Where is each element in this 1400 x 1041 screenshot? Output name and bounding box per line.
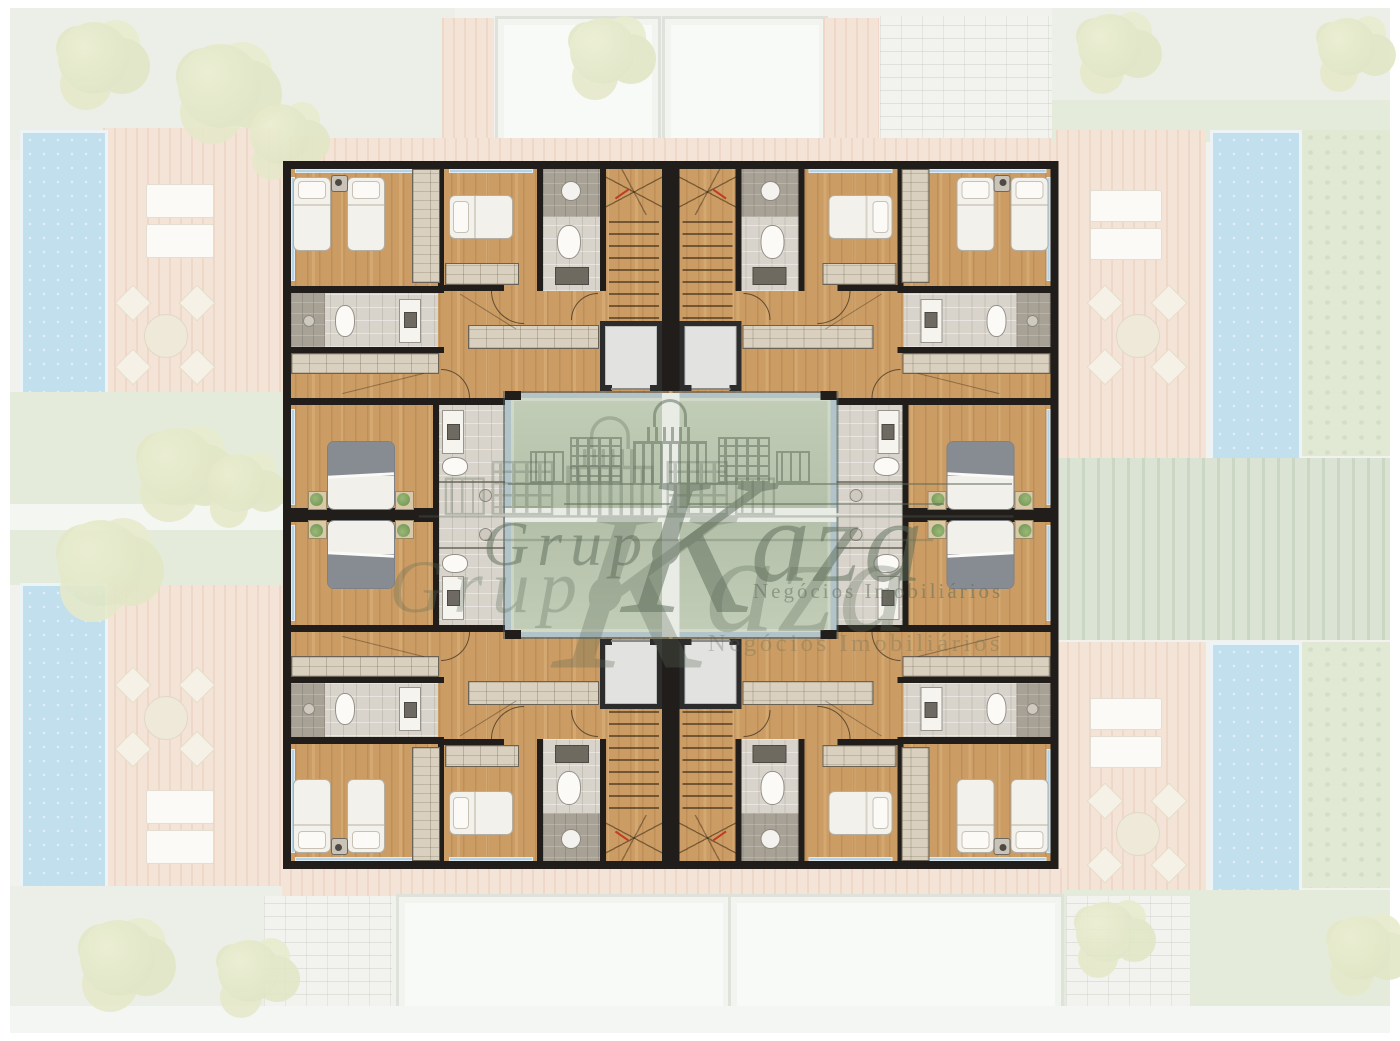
chair — [1151, 349, 1188, 386]
exterior-wall — [283, 515, 291, 869]
toilet — [442, 554, 468, 573]
elevator — [679, 321, 741, 390]
wardrobe — [445, 263, 519, 285]
shower-drain — [303, 703, 315, 715]
shower-drain — [849, 528, 862, 541]
wardrobe — [291, 353, 439, 374]
table — [1116, 812, 1160, 856]
shower-drain — [479, 528, 492, 541]
twin-bed — [1010, 779, 1048, 853]
wardrobe — [901, 169, 929, 283]
plant-icon — [931, 524, 944, 537]
sheet — [947, 476, 1013, 509]
hall-wardrobe — [468, 325, 599, 349]
nightstand — [927, 491, 946, 510]
elevator-door-sill — [611, 640, 651, 642]
interior-wall — [897, 286, 1058, 293]
tree — [208, 454, 266, 512]
plant-icon — [397, 493, 410, 506]
shower-partition — [836, 548, 902, 550]
toilet — [873, 457, 899, 476]
chair — [1087, 847, 1124, 884]
pillow — [453, 201, 469, 233]
chair — [179, 349, 216, 386]
hall-wardrobe — [468, 681, 599, 705]
tree — [1328, 916, 1392, 980]
nightstand — [1014, 520, 1033, 539]
atrium-mullion — [505, 508, 671, 515]
chair — [115, 285, 152, 322]
toilet — [557, 771, 581, 805]
pillow — [872, 201, 888, 233]
sink — [881, 424, 894, 440]
bath-mat — [752, 745, 786, 763]
staircase — [606, 169, 662, 321]
floor-plan-image: Grupo K aza Negócios Imobiliários Grupo … — [0, 0, 1400, 1041]
blanket-fold — [1011, 204, 1047, 206]
right-lounge-chair-2 — [1090, 228, 1162, 260]
round-basin — [760, 829, 780, 849]
vanity-sink — [442, 410, 464, 454]
pillow — [961, 831, 989, 849]
sink — [404, 702, 417, 718]
chair — [115, 667, 152, 704]
blanket-fold — [957, 204, 993, 206]
nightstand — [395, 491, 414, 510]
wardrobe — [902, 656, 1050, 677]
bathroom — [741, 739, 798, 861]
top-stone-terrace — [880, 16, 1052, 156]
unit-quadrant — [283, 161, 671, 515]
bottom-walk-strip — [10, 1006, 1390, 1033]
double-bed — [946, 441, 1014, 510]
interior-wall — [735, 739, 741, 869]
atrium-glass-roof — [505, 515, 671, 637]
blanket-fold — [474, 196, 476, 238]
interior-wall — [836, 625, 1058, 632]
exterior-wall — [671, 861, 1059, 869]
pillow — [872, 797, 888, 829]
right-lawn-lower — [1302, 642, 1390, 888]
vanity-sink — [399, 687, 421, 731]
blanket-fold — [294, 204, 330, 206]
interior-wall — [897, 737, 1058, 744]
nightstand — [395, 520, 414, 539]
elevator-door-sill — [611, 388, 651, 390]
chair — [179, 285, 216, 322]
pillow — [298, 831, 326, 849]
toilet — [557, 225, 581, 259]
blanket — [328, 554, 394, 588]
sink — [924, 312, 937, 328]
chair — [1151, 285, 1188, 322]
vanity-sink — [920, 687, 942, 731]
vanity-sink — [399, 299, 421, 343]
toilet — [986, 305, 1006, 337]
tree — [250, 104, 310, 164]
twin-bed — [347, 177, 385, 251]
elevator — [600, 640, 662, 709]
twin-bed — [956, 779, 994, 853]
wardrobe — [822, 745, 896, 767]
interior-wall — [902, 405, 908, 508]
wall-light-icon — [993, 175, 1010, 192]
atrium-glass-roof — [671, 515, 837, 637]
atrium-mullion — [671, 508, 837, 515]
right-lounge-chair-1 — [1090, 190, 1162, 222]
pillow — [453, 797, 469, 829]
bottom-skylight-right — [728, 894, 1064, 1018]
blanket-fold — [348, 824, 384, 826]
nightstand — [308, 491, 327, 510]
right-dining-set-upper — [1092, 290, 1182, 380]
blanket-fold — [865, 196, 867, 238]
single-bed — [449, 195, 513, 239]
atrium-mullion — [671, 515, 680, 637]
window-band — [291, 409, 295, 505]
atrium-corner-wall — [505, 391, 521, 400]
left-dining-set-lower — [120, 672, 210, 762]
right-pool-lower — [1210, 642, 1302, 894]
nightstand — [308, 520, 327, 539]
bathroom — [741, 169, 798, 291]
chair — [1087, 285, 1124, 322]
pillow — [961, 181, 989, 199]
chair — [179, 667, 216, 704]
shower-partition — [439, 481, 505, 483]
chair — [1087, 349, 1124, 386]
interior-wall — [798, 739, 804, 869]
twin-bed — [347, 779, 385, 853]
table — [144, 696, 188, 740]
right-pool-upper — [1210, 130, 1302, 462]
unit-quadrant — [671, 161, 1059, 515]
plant-icon — [397, 524, 410, 537]
toilet — [335, 693, 355, 725]
toilet — [760, 771, 784, 805]
wardrobe — [412, 169, 440, 283]
atrium-glass-roof — [671, 393, 837, 515]
double-bed — [327, 441, 395, 510]
toilet — [335, 305, 355, 337]
plant-icon — [931, 493, 944, 506]
bath-mat — [555, 745, 589, 763]
exterior-wall — [1050, 161, 1058, 515]
wall-light-icon — [993, 838, 1010, 855]
table — [1116, 314, 1160, 358]
plant-icon — [1018, 524, 1031, 537]
bottom-skylight-left — [396, 894, 732, 1018]
plant-icon — [310, 493, 323, 506]
interior-wall — [836, 398, 1058, 405]
chair — [115, 731, 152, 768]
twin-bed — [956, 177, 994, 251]
atrium-mullion — [671, 515, 837, 522]
atrium-mullion — [662, 393, 671, 515]
core-center-wall — [671, 161, 680, 391]
core-center-wall — [662, 161, 671, 391]
double-bed — [327, 520, 395, 589]
unit-quadrant — [671, 515, 1059, 869]
bathroom — [543, 739, 600, 861]
toilet — [442, 457, 468, 476]
atrium-corner-wall — [505, 630, 521, 639]
pillow — [298, 181, 326, 199]
round-basin — [561, 829, 581, 849]
winder-steps — [679, 815, 735, 861]
ensuite-bathroom — [439, 515, 505, 625]
tree — [58, 22, 130, 94]
atrium-corner-wall — [820, 630, 836, 639]
wardrobe — [901, 747, 929, 861]
sheet — [947, 521, 1013, 554]
exterior-wall — [283, 861, 671, 869]
staircase — [606, 709, 662, 861]
wall-light-icon — [331, 838, 348, 855]
wardrobe — [822, 263, 896, 285]
bathroom — [903, 293, 1050, 347]
blanket-fold — [474, 792, 476, 834]
right-dining-set-lower — [1092, 788, 1182, 878]
wardrobe — [445, 745, 519, 767]
hall-wardrobe — [742, 325, 873, 349]
toilet — [986, 693, 1006, 725]
stair-treads — [682, 711, 732, 815]
table — [144, 314, 188, 358]
top-deck-stub-right — [823, 18, 879, 148]
top-skylight-right — [662, 16, 828, 154]
toilet — [760, 225, 784, 259]
window-band — [808, 169, 892, 173]
interior-wall — [283, 286, 444, 293]
sink — [447, 424, 460, 440]
vanity-sink — [877, 576, 899, 620]
shower-drain — [1026, 703, 1038, 715]
vanity-sink — [442, 576, 464, 620]
shower-drain — [303, 315, 315, 327]
tree — [1078, 14, 1142, 78]
blanket-fold — [865, 792, 867, 834]
window-band — [449, 169, 533, 173]
hall-wardrobe — [742, 681, 873, 705]
round-basin — [760, 181, 780, 201]
left-lounge-chair-1 — [146, 184, 214, 218]
wardrobe — [291, 656, 439, 677]
pillow — [352, 181, 380, 199]
interior-wall — [283, 737, 444, 744]
vanity-sink — [920, 299, 942, 343]
atrium-glass-roof — [505, 393, 671, 515]
sink — [924, 702, 937, 718]
tree — [178, 44, 262, 128]
shower-partition — [439, 548, 505, 550]
sink — [881, 590, 894, 606]
blanket-fold — [294, 824, 330, 826]
interior-wall — [283, 398, 505, 405]
exterior-wall — [283, 161, 671, 169]
round-basin — [561, 181, 581, 201]
winder-steps — [606, 815, 662, 861]
chair — [1087, 783, 1124, 820]
core-center-wall — [662, 639, 671, 869]
right-hedge-band — [1052, 458, 1390, 640]
stair-treads — [609, 215, 659, 319]
left-lounge-chair-4 — [146, 830, 214, 864]
toilet — [873, 554, 899, 573]
vanity-sink — [877, 410, 899, 454]
twin-bed — [293, 177, 331, 251]
tree — [80, 920, 156, 996]
plant-icon — [1018, 493, 1031, 506]
window-band — [1046, 525, 1050, 621]
shower-partition — [836, 481, 902, 483]
sink — [447, 590, 460, 606]
blanket-fold — [957, 824, 993, 826]
shower-drain — [1026, 315, 1038, 327]
chair — [1151, 783, 1188, 820]
atrium-mullion — [662, 515, 671, 637]
elevator-door-sill — [690, 640, 730, 642]
winder-steps — [606, 169, 662, 215]
stair-treads — [609, 711, 659, 815]
ensuite-bathroom — [836, 515, 902, 625]
window-band — [291, 525, 295, 621]
bathroom — [543, 169, 600, 291]
left-pool-upper — [20, 130, 108, 398]
floor-plan: Grupo K aza Negócios Imobiliários Grupo … — [283, 161, 1058, 869]
elevator — [679, 640, 741, 709]
staircase — [679, 169, 735, 321]
interior-wall — [283, 625, 505, 632]
single-bed — [828, 195, 892, 239]
bathroom — [291, 293, 438, 347]
winder-steps — [679, 169, 735, 215]
wall-light-icon — [331, 175, 348, 192]
right-lounge-chair-3 — [1090, 698, 1162, 730]
left-pool-lower — [20, 583, 108, 895]
tree — [58, 520, 144, 606]
ensuite-bathroom — [836, 405, 902, 515]
chair — [1151, 847, 1188, 884]
unit-quadrant — [283, 515, 671, 869]
atrium-mullion — [671, 393, 680, 515]
interior-wall — [798, 161, 804, 291]
right-lawn-upper — [1302, 130, 1390, 456]
sheet — [328, 476, 394, 509]
wardrobe — [902, 353, 1050, 374]
wardrobe — [412, 747, 440, 861]
chair — [179, 731, 216, 768]
tree — [1318, 18, 1376, 76]
tree — [218, 940, 280, 1002]
window-band — [1046, 409, 1050, 505]
left-lounge-chair-2 — [146, 224, 214, 258]
sheet — [328, 521, 394, 554]
tree — [138, 428, 216, 506]
interior-wall — [735, 161, 741, 291]
bath-mat — [752, 267, 786, 285]
twin-bed — [293, 779, 331, 853]
elevator-door-sill — [690, 388, 730, 390]
bathroom — [903, 683, 1050, 737]
plant-icon — [310, 524, 323, 537]
blanket — [947, 442, 1013, 476]
pillow — [352, 831, 380, 849]
blanket-fold — [348, 204, 384, 206]
pillow — [1015, 831, 1043, 849]
left-garden-band-lower — [10, 530, 283, 585]
top-deck-stub-left — [442, 18, 494, 148]
exterior-wall — [283, 161, 291, 515]
exterior-wall — [1050, 515, 1058, 869]
single-bed — [449, 791, 513, 835]
blanket-fold — [1011, 824, 1047, 826]
pillow — [1015, 181, 1043, 199]
bath-mat — [555, 267, 589, 285]
bottom-stone-left — [264, 896, 392, 1008]
elevator — [600, 321, 662, 390]
shower-drain — [479, 489, 492, 502]
exterior-wall — [671, 161, 1059, 169]
terrace-strip-below-plan — [268, 868, 1063, 896]
blanket — [947, 554, 1013, 588]
interior-wall — [902, 522, 908, 625]
staircase — [679, 709, 735, 861]
ensuite-bathroom — [439, 405, 505, 515]
tree — [570, 18, 636, 84]
stair-treads — [682, 215, 732, 319]
left-lounge-chair-3 — [146, 790, 214, 824]
sink — [404, 312, 417, 328]
core-center-wall — [671, 639, 680, 869]
blanket — [328, 442, 394, 476]
bathroom — [291, 683, 438, 737]
twin-bed — [1010, 177, 1048, 251]
atrium-mullion — [505, 515, 671, 522]
atrium-corner-wall — [820, 391, 836, 400]
double-bed — [946, 520, 1014, 589]
right-lounge-chair-4 — [1090, 736, 1162, 768]
single-bed — [828, 791, 892, 835]
chair — [115, 349, 152, 386]
shower-drain — [849, 489, 862, 502]
tree — [1076, 902, 1136, 962]
nightstand — [927, 520, 946, 539]
nightstand — [1014, 491, 1033, 510]
left-dining-set-upper — [120, 290, 210, 380]
